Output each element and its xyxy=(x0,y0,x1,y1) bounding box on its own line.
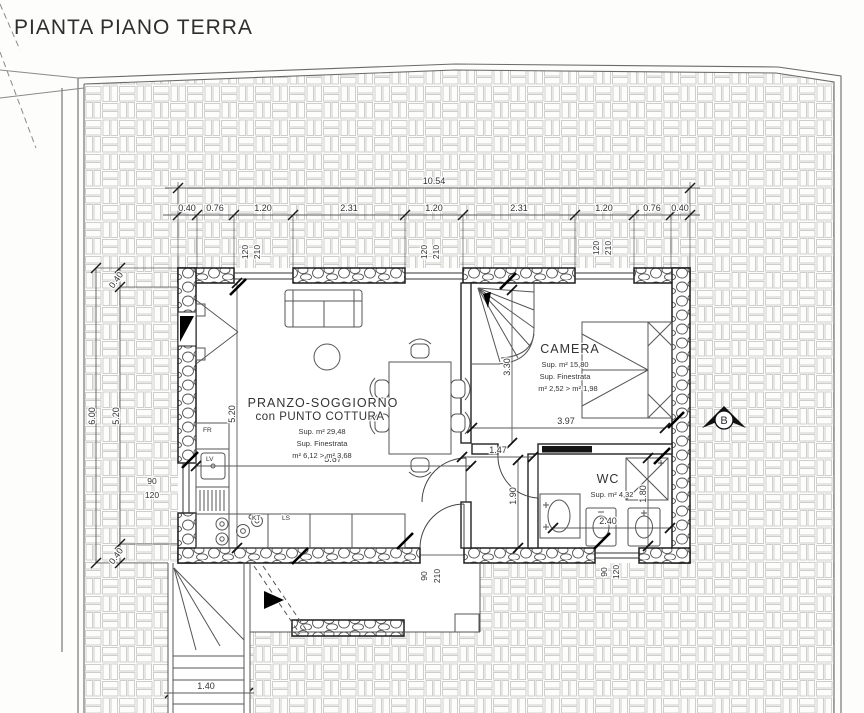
dim-wc-width: 2.40 xyxy=(599,516,617,526)
cooktop-label: KT xyxy=(252,515,260,522)
window3-width: 120 xyxy=(591,241,601,255)
dim-top-1: 0.76 xyxy=(206,203,224,213)
dim-stair-width: 1.40 xyxy=(197,681,215,691)
window-south-height: 120 xyxy=(611,565,621,579)
camera-fen-label: Sup. Finestrata xyxy=(540,372,592,381)
counter-label: LS xyxy=(282,515,291,522)
dim-hall: 1.90 xyxy=(508,487,518,505)
living-room-fen-label: Sup. Finestrata xyxy=(297,439,349,448)
window1-height: 210 xyxy=(252,245,262,259)
window-left-height: 120 xyxy=(145,490,159,500)
dim-corridor: 1.47 xyxy=(489,445,507,455)
dim-wc-height: 1.80 xyxy=(638,485,648,503)
window-south-width: 90 xyxy=(599,567,609,577)
road-lines xyxy=(0,4,84,148)
living-room-name: PRANZO-SOGGIORNO xyxy=(248,396,399,410)
floor-plan-page: PIANTA PIANO TERRA xyxy=(0,0,864,713)
window3-height: 210 xyxy=(603,241,613,255)
fridge-label: FR xyxy=(203,427,212,434)
dim-left-total: 6.00 xyxy=(87,407,97,425)
living-room-fen-values: m² 6,12 > m² 3,68 xyxy=(292,451,351,460)
window2-width: 120 xyxy=(419,245,429,259)
door-south-height: 210 xyxy=(432,569,442,583)
window1-width: 120 xyxy=(240,245,250,259)
dim-top-3: 2.31 xyxy=(340,203,358,213)
dim-top-2: 1.20 xyxy=(254,203,272,213)
living-room-subname: con PUNTO COTTURA xyxy=(255,411,384,423)
wc-name: WC xyxy=(597,472,620,486)
camera-fen-values: m² 2,52 > m² 1,98 xyxy=(538,384,597,393)
window2-height: 210 xyxy=(431,245,441,259)
door-south-width: 90 xyxy=(419,571,429,581)
sink-label: LV xyxy=(206,456,214,463)
dim-total-width: 10.54 xyxy=(423,176,446,186)
dim-top-4: 1.20 xyxy=(425,203,443,213)
dim-top-5: 2.31 xyxy=(510,203,528,213)
dim-top-8: 0.40 xyxy=(671,203,689,213)
floor-plan-canvas: 10.54 0.40 0.76 1.20 2.31 1.20 2.31 1.20… xyxy=(0,0,864,713)
dim-camera-height: 3.30 xyxy=(502,358,512,376)
dim-top-6: 1.20 xyxy=(595,203,613,213)
camera-name: CAMERA xyxy=(540,342,599,356)
dim-living-height: 5.20 xyxy=(227,405,237,423)
window-left-width: 90 xyxy=(147,476,157,486)
wc-area: Sup. m² 4,32 xyxy=(591,490,634,499)
dim-top-7: 0.76 xyxy=(643,203,661,213)
dim-left-1: 5.20 xyxy=(111,407,121,425)
dim-top-0: 0.40 xyxy=(178,203,196,213)
living-room-area: Sup. m² 29,48 xyxy=(298,427,345,436)
section-marker-letter: B xyxy=(720,415,727,427)
camera-area: Sup. m² 15,80 xyxy=(541,360,588,369)
lintel-band xyxy=(542,446,592,453)
dim-camera-width: 3.97 xyxy=(557,416,575,426)
